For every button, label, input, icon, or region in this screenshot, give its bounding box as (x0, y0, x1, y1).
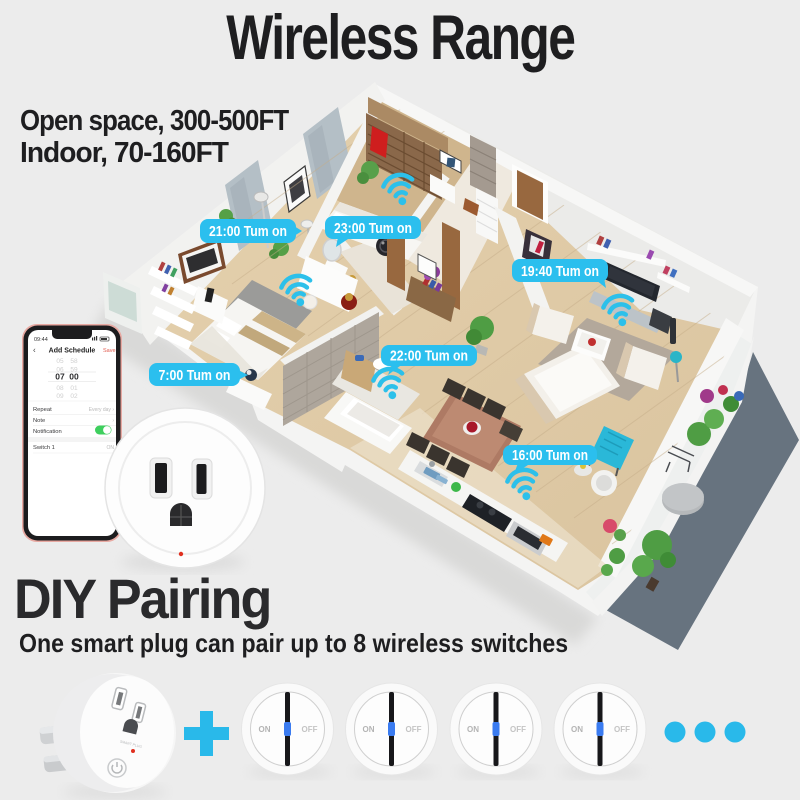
svg-text:Notification: Notification (33, 429, 62, 435)
svg-text:22:00 Tum on: 22:00 Tum on (390, 348, 468, 365)
svg-text:58: 58 (70, 358, 78, 365)
svg-text:08: 08 (56, 385, 64, 392)
svg-text:Repeat: Repeat (33, 407, 52, 413)
svg-text:Add Schedule: Add Schedule (49, 348, 96, 355)
svg-text:OFF: OFF (302, 725, 318, 734)
svg-text:07: 07 (55, 372, 65, 382)
svg-text:7:00 Tum on: 7:00 Tum on (159, 367, 231, 384)
svg-text:OFF: OFF (510, 725, 526, 734)
svg-text:Note: Note (33, 418, 45, 424)
svg-text:09:44: 09:44 (34, 337, 48, 343)
svg-text:ON: ON (363, 725, 375, 734)
svg-text:23:00 Tum on: 23:00 Tum on (334, 220, 412, 237)
svg-text:ON: ON (259, 725, 271, 734)
svg-text:05: 05 (56, 358, 64, 365)
svg-text:02: 02 (70, 393, 78, 400)
svg-text:ON: ON (107, 445, 115, 451)
svg-text:ON: ON (467, 725, 479, 734)
svg-text:16:00 Tum on: 16:00 Tum on (512, 447, 588, 464)
svg-text:Save: Save (103, 348, 116, 354)
svg-text:ON: ON (571, 725, 583, 734)
svg-text:‹: ‹ (33, 346, 36, 355)
svg-text:Switch 1: Switch 1 (33, 445, 55, 451)
svg-text:00: 00 (69, 372, 79, 382)
svg-text:OFF: OFF (406, 725, 422, 734)
svg-text:01: 01 (70, 385, 78, 392)
svg-text:19:40 Tum on: 19:40 Tum on (521, 263, 599, 280)
svg-text:09: 09 (56, 393, 64, 400)
svg-text:Every day ›: Every day › (89, 407, 115, 413)
svg-text:OFF: OFF (614, 725, 630, 734)
svg-text:21:00 Tum on: 21:00 Tum on (209, 223, 287, 240)
